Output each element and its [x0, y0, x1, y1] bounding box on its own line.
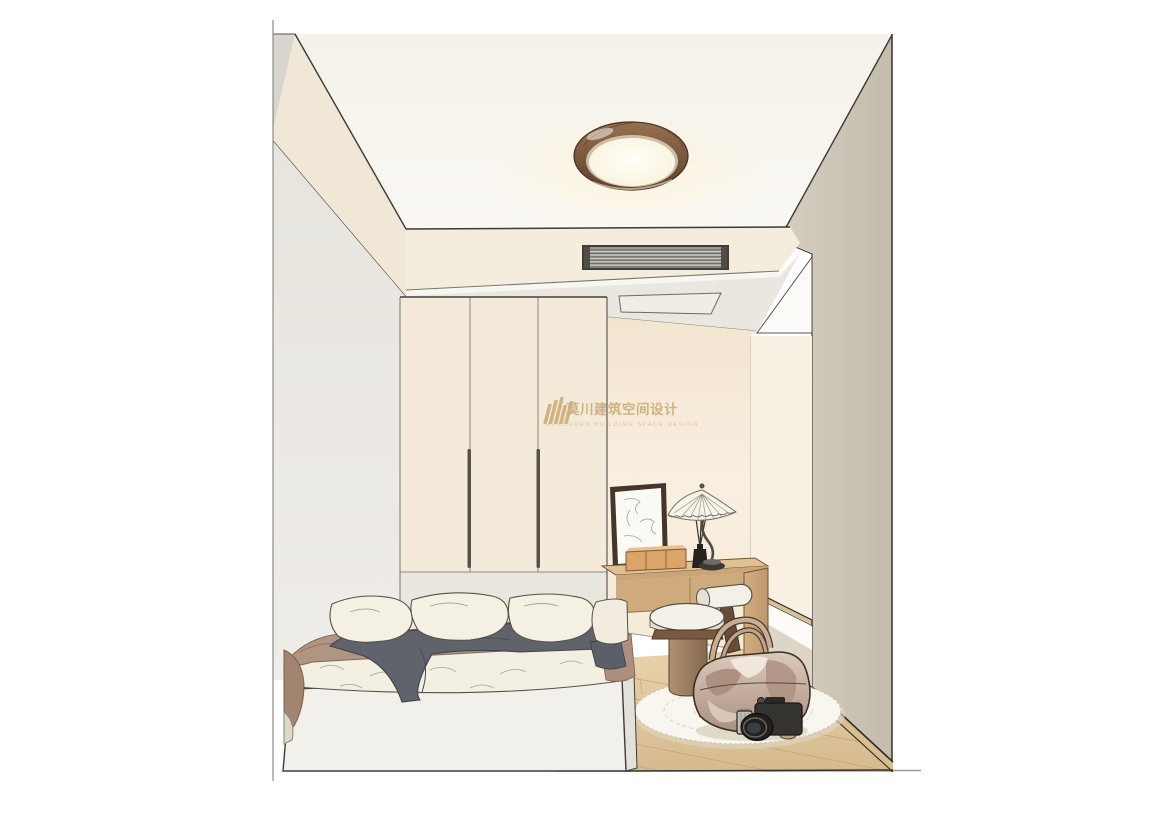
pillow-4 [592, 599, 628, 644]
pillow-2 [411, 593, 508, 640]
wardrobe-door-handle-1 [468, 449, 472, 568]
seat-cushion [650, 604, 724, 631]
ceiling-recess-panel [619, 293, 721, 314]
wardrobe-door-handle-2 [537, 449, 541, 568]
watermark-chinese-text: 莫川建筑空间设计 [565, 401, 678, 418]
watermark-english-text: MOKCHUEN BUILDING SPACE DESIGN [545, 422, 699, 428]
ac-vent [583, 246, 728, 269]
ac-vent-endcap-left [584, 247, 590, 268]
bedroom-rendering-canvas: 莫川建筑空间设计 MOKCHUEN BUILDING SPACE DESIGN [0, 0, 1150, 813]
pillow-1 [330, 596, 412, 642]
floor-front-edge [626, 770, 893, 771]
camera-lens-glass [747, 723, 761, 734]
lamp-base-top [703, 559, 721, 565]
wardrobe [400, 297, 607, 640]
interior-rendering-page: 莫川建筑空间设计 MOKCHUEN BUILDING SPACE DESIGN [0, 0, 1150, 813]
ac-vent-endcap-right [721, 247, 727, 268]
ceiling-light [574, 122, 688, 190]
pillow-3 [508, 594, 594, 642]
bed [283, 593, 637, 771]
seat-base-plate [652, 630, 723, 639]
light-diffuser [589, 138, 675, 186]
box-stack [626, 549, 686, 571]
watermark: 莫川建筑空间设计 MOKCHUEN BUILDING SPACE DESIGN [543, 397, 699, 428]
lamp-finial [700, 484, 705, 489]
